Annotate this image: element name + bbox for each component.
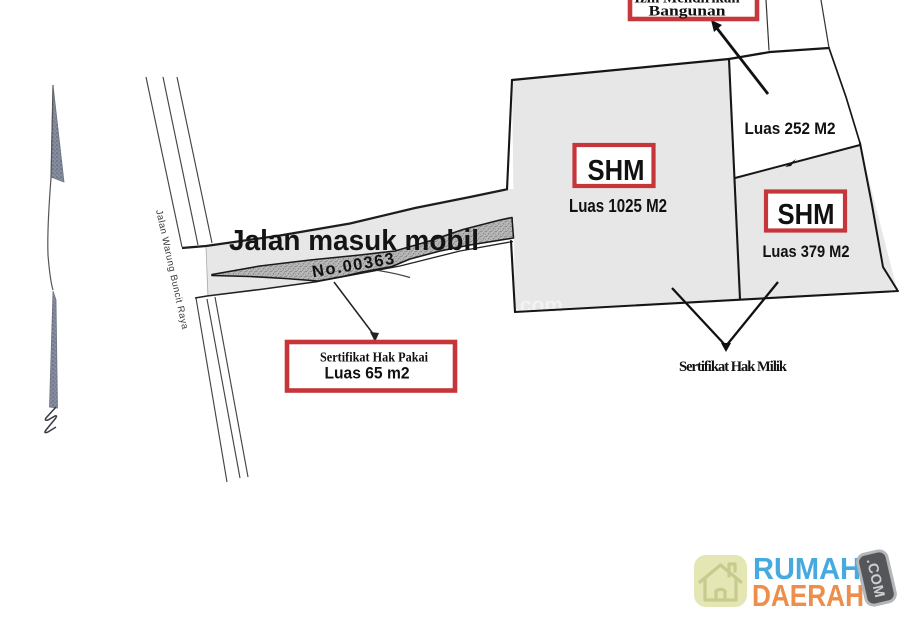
svg-text:.com: .com — [514, 294, 563, 317]
svg-text:DAERAH: DAERAH — [752, 578, 864, 613]
svg-text:Jalan masuk mobil: Jalan masuk mobil — [229, 225, 479, 257]
svg-text:Luas 252 M2: Luas 252 M2 — [745, 119, 836, 138]
svg-text:Bangunan: Bangunan — [649, 4, 726, 20]
svg-text:Luas 65 m2: Luas 65 m2 — [325, 364, 410, 383]
svg-text:Sertifikat Hak Milik: Sertifikat Hak Milik — [679, 359, 788, 375]
svg-text:Jalan Warung Buncit Raya: Jalan Warung Buncit Raya — [153, 209, 190, 331]
svg-text:SHM: SHM — [778, 199, 835, 231]
svg-text:Luas 1025 M2: Luas 1025 M2 — [569, 196, 667, 216]
svg-text:Luas 379 M2: Luas 379 M2 — [763, 242, 850, 261]
svg-text:SHM: SHM — [588, 155, 645, 187]
